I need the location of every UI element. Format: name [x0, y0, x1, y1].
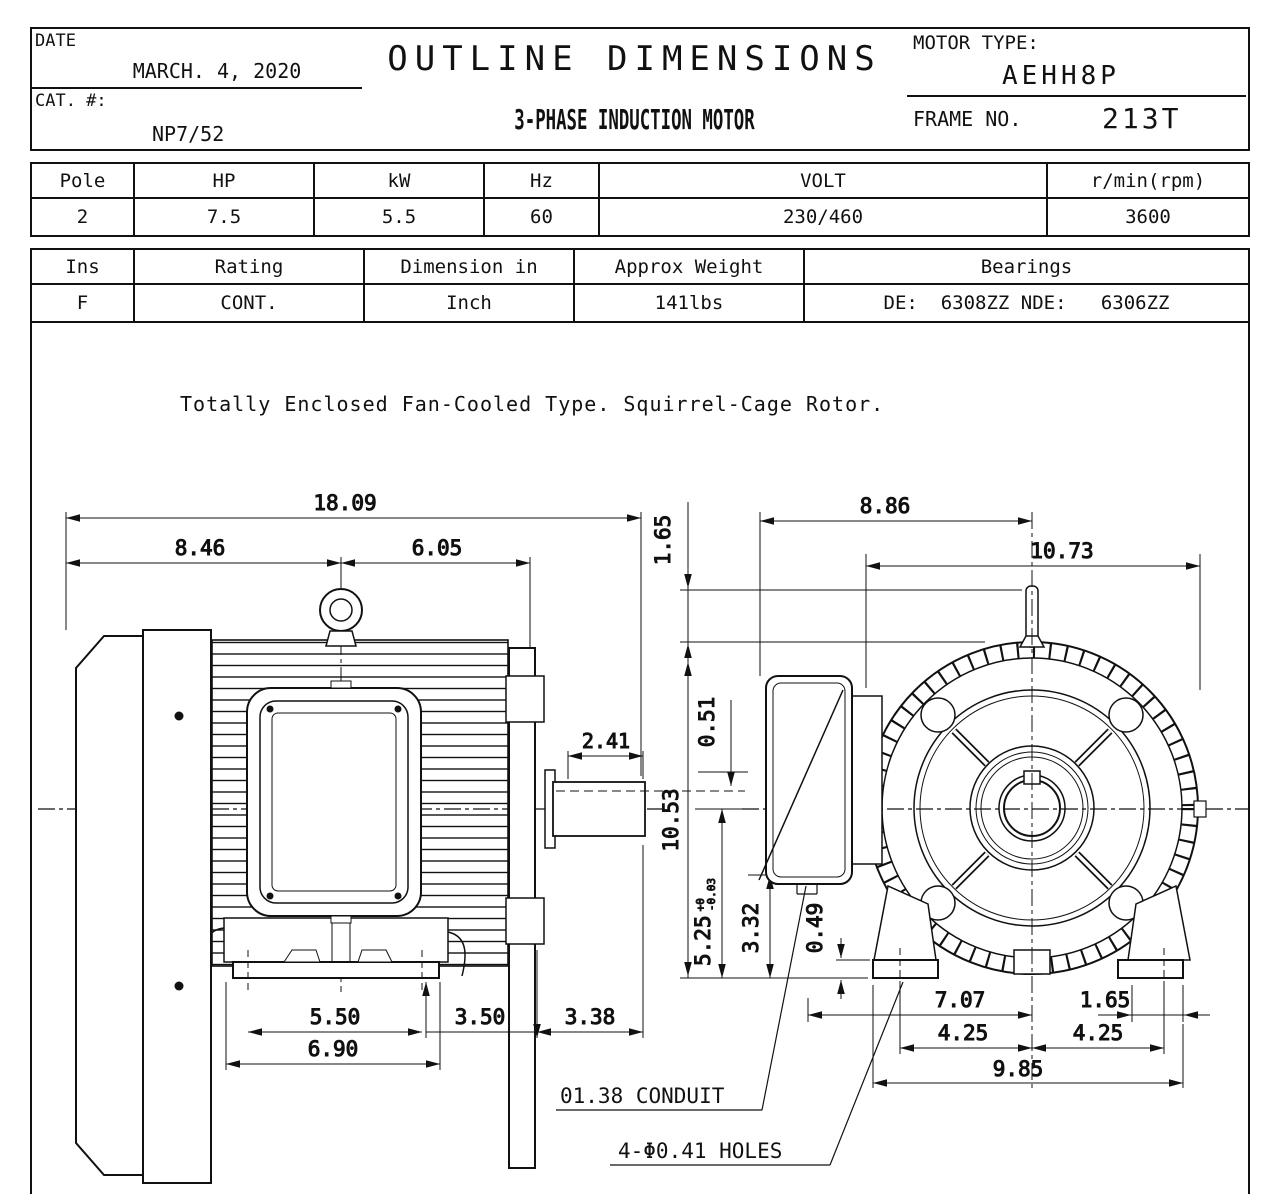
- cover-screw: [175, 712, 184, 721]
- front-view: [742, 512, 1248, 1092]
- dim-frame-height: 10.53: [659, 788, 683, 851]
- cover-screw: [175, 982, 184, 991]
- dim-shaft-extension: 2.41: [582, 729, 630, 753]
- conduit-callout: 01.38 CONDUIT: [560, 1084, 725, 1108]
- dim-shaft-length: 3.38: [565, 1005, 616, 1029]
- dim-box-to-center: 8.86: [860, 494, 911, 518]
- eyebolt-side: [320, 589, 362, 646]
- dim-key-height: 0.51: [695, 697, 719, 748]
- side-foot: [207, 918, 465, 990]
- dim-foot-hole-span: 5.50: [310, 1005, 361, 1029]
- dim-frame-od: 10.73: [1030, 539, 1093, 563]
- dim-conduit-to-center: 7.07: [935, 988, 986, 1012]
- clip-tab: [1194, 801, 1206, 817]
- dim-pad-edge: 1.65: [1080, 988, 1131, 1012]
- dim-shaft-center-height: 5.25+0-0.03: [691, 878, 718, 966]
- drive-end-bracket: [506, 648, 544, 1168]
- dim-bolt-span-right: 4.25: [1073, 1021, 1124, 1045]
- dim-foot-pad-thickness: 0.49: [803, 903, 827, 954]
- dim-overall-length: 18.09: [313, 491, 376, 515]
- outline-drawing: 18.09 8.46 6.05 2.41 5.50 3.50 3.38 6.90…: [0, 0, 1280, 1194]
- dim-bolt-span-left: 4.25: [938, 1021, 989, 1045]
- dim-eyebolt-height: 1.65: [651, 515, 675, 566]
- dim-face-to-pad: 3.50: [455, 1005, 506, 1029]
- fan-cover: [76, 630, 211, 1183]
- drawing-sheet: DATE MARCH. 4, 2020 CAT. #: NP7/52 OUTLI…: [0, 0, 1280, 1194]
- holes-callout: 4-Φ0.41 HOLES: [618, 1139, 782, 1163]
- dim-eyebolt-to-face: 6.05: [412, 536, 463, 560]
- dim-base-width: 9.85: [993, 1057, 1044, 1081]
- dim-foot-length: 6.90: [308, 1037, 359, 1061]
- dim-conduit-center-height: 3.32: [739, 903, 763, 954]
- bolt-hole: [921, 698, 955, 732]
- terminal-box-front: [759, 676, 882, 894]
- dim-rear-to-eyebolt: 8.46: [175, 536, 226, 560]
- conduit-stub: [797, 884, 817, 894]
- terminal-box-side: [247, 681, 421, 923]
- bolt-hole: [1109, 698, 1143, 732]
